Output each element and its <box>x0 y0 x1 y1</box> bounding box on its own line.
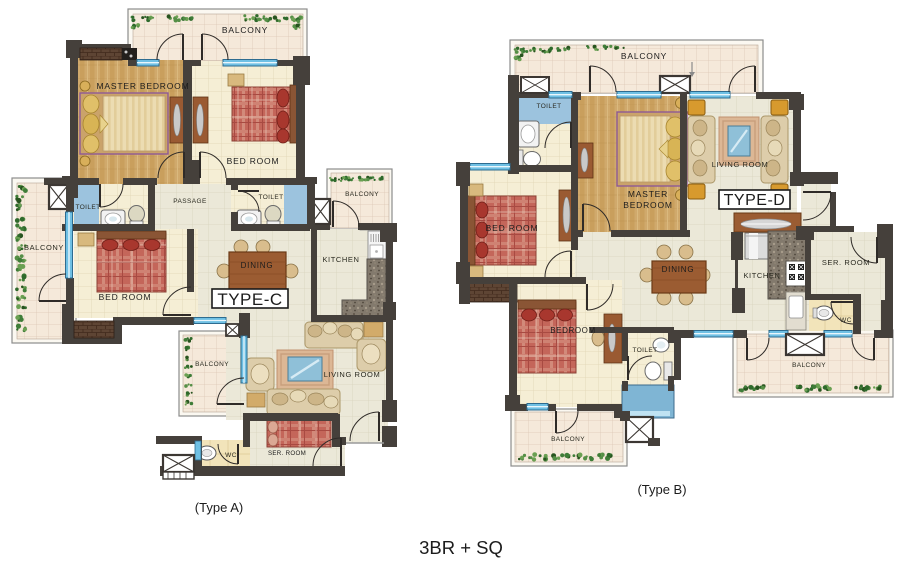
svg-text:BALCONY: BALCONY <box>621 51 667 61</box>
svg-text:BEDROOM: BEDROOM <box>550 326 596 335</box>
svg-text:BALCONY: BALCONY <box>195 361 229 368</box>
svg-text:WC: WC <box>840 317 852 324</box>
svg-text:BALCONY: BALCONY <box>551 436 585 443</box>
svg-text:LIVING ROOM: LIVING ROOM <box>324 370 381 379</box>
svg-text:WC: WC <box>225 452 237 459</box>
svg-text:SER. ROOM: SER. ROOM <box>822 258 870 267</box>
svg-text:DINING: DINING <box>241 261 274 270</box>
svg-text:BED ROOM: BED ROOM <box>486 223 539 233</box>
svg-text:TOILET: TOILET <box>536 103 561 110</box>
svg-text:BALCONY: BALCONY <box>222 25 268 35</box>
svg-text:TOILET: TOILET <box>258 194 283 201</box>
svg-text:KITCHEN: KITCHEN <box>322 255 359 264</box>
svg-text:BED ROOM: BED ROOM <box>227 156 280 166</box>
svg-text:BALCONY: BALCONY <box>792 362 826 369</box>
svg-text:MASTER: MASTER <box>628 189 668 199</box>
svg-text:BALCONY: BALCONY <box>24 243 64 252</box>
svg-text:TYPE-D: TYPE-D <box>724 192 786 209</box>
svg-text:BED ROOM: BED ROOM <box>99 292 152 302</box>
svg-text:(Type A): (Type A) <box>195 500 243 515</box>
svg-text:TOILET: TOILET <box>632 347 657 354</box>
svg-text:3BR + SQ: 3BR + SQ <box>419 537 503 558</box>
svg-text:(Type B): (Type B) <box>637 482 686 497</box>
svg-text:PASSAGE: PASSAGE <box>173 198 207 205</box>
svg-text:BEDROOM: BEDROOM <box>623 200 673 210</box>
svg-text:SER. ROOM: SER. ROOM <box>268 450 306 457</box>
svg-text:TOILET: TOILET <box>75 204 100 211</box>
svg-text:MASTER BEDROOM: MASTER BEDROOM <box>97 81 190 91</box>
svg-text:KITCHEN: KITCHEN <box>743 271 780 280</box>
svg-text:TYPE-C: TYPE-C <box>217 290 282 309</box>
svg-text:LIVING ROOM: LIVING ROOM <box>712 160 769 169</box>
svg-text:DINING: DINING <box>662 265 695 274</box>
svg-text:BALCONY: BALCONY <box>345 191 379 198</box>
